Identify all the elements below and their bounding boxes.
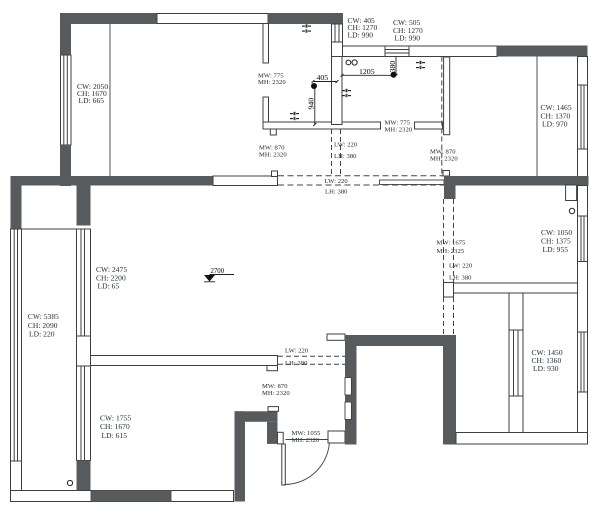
svg-text:MW: 1675: MW: 1675 <box>437 240 467 247</box>
svg-text:MH: 2320: MH: 2320 <box>430 156 458 163</box>
svg-text:CW: 5385: CW: 5385 <box>28 312 59 321</box>
svg-text:CW: 1755: CW: 1755 <box>100 414 131 423</box>
svg-text:LH: 380: LH: 380 <box>285 360 308 367</box>
svg-text:MH: 2325: MH: 2325 <box>437 248 465 255</box>
svg-text:LW: 220: LW: 220 <box>449 263 473 270</box>
svg-text:MW: 870: MW: 870 <box>430 149 456 156</box>
svg-text:LH: 380: LH: 380 <box>325 188 348 195</box>
svg-text:LW: 220: LW: 220 <box>334 142 358 149</box>
svg-text:MH: 2320: MH: 2320 <box>385 127 413 134</box>
svg-text:1205: 1205 <box>359 67 375 76</box>
svg-text:LW: 220: LW: 220 <box>285 347 309 354</box>
svg-text:LD: 970: LD: 970 <box>542 120 568 129</box>
svg-text:MW: 870: MW: 870 <box>259 145 285 152</box>
svg-text:LH: 380: LH: 380 <box>334 153 357 160</box>
svg-text:MW: 775: MW: 775 <box>385 120 411 127</box>
svg-text:LD: 955: LD: 955 <box>543 245 569 254</box>
svg-text:CH: 1670: CH: 1670 <box>100 422 130 431</box>
svg-text:LD: 220: LD: 220 <box>29 330 55 339</box>
svg-text:LD: 665: LD: 665 <box>79 96 105 105</box>
svg-text:LD: 930: LD: 930 <box>533 364 559 373</box>
svg-text:940: 940 <box>306 98 315 110</box>
svg-text:LD: 615: LD: 615 <box>102 431 128 440</box>
svg-text:LD: 65: LD: 65 <box>98 282 120 291</box>
svg-text:MH: 2320: MH: 2320 <box>262 390 290 397</box>
svg-text:405: 405 <box>317 73 329 82</box>
svg-text:MH: 2320: MH: 2320 <box>292 437 320 444</box>
svg-text:LH: 380: LH: 380 <box>449 275 472 282</box>
svg-text:MW: 1055: MW: 1055 <box>292 430 322 437</box>
svg-text:MH: 2320: MH: 2320 <box>259 152 287 159</box>
svg-text:LD: 990: LD: 990 <box>348 31 374 40</box>
svg-text:380: 380 <box>388 61 397 73</box>
svg-text:MW: 870: MW: 870 <box>262 383 288 390</box>
svg-text:2700: 2700 <box>211 268 225 275</box>
svg-text:MH: 2320: MH: 2320 <box>258 79 286 86</box>
svg-text:LD: 990: LD: 990 <box>395 34 421 43</box>
svg-text:CH: 2090: CH: 2090 <box>28 321 58 330</box>
svg-text:LW: 220: LW: 220 <box>325 178 349 185</box>
